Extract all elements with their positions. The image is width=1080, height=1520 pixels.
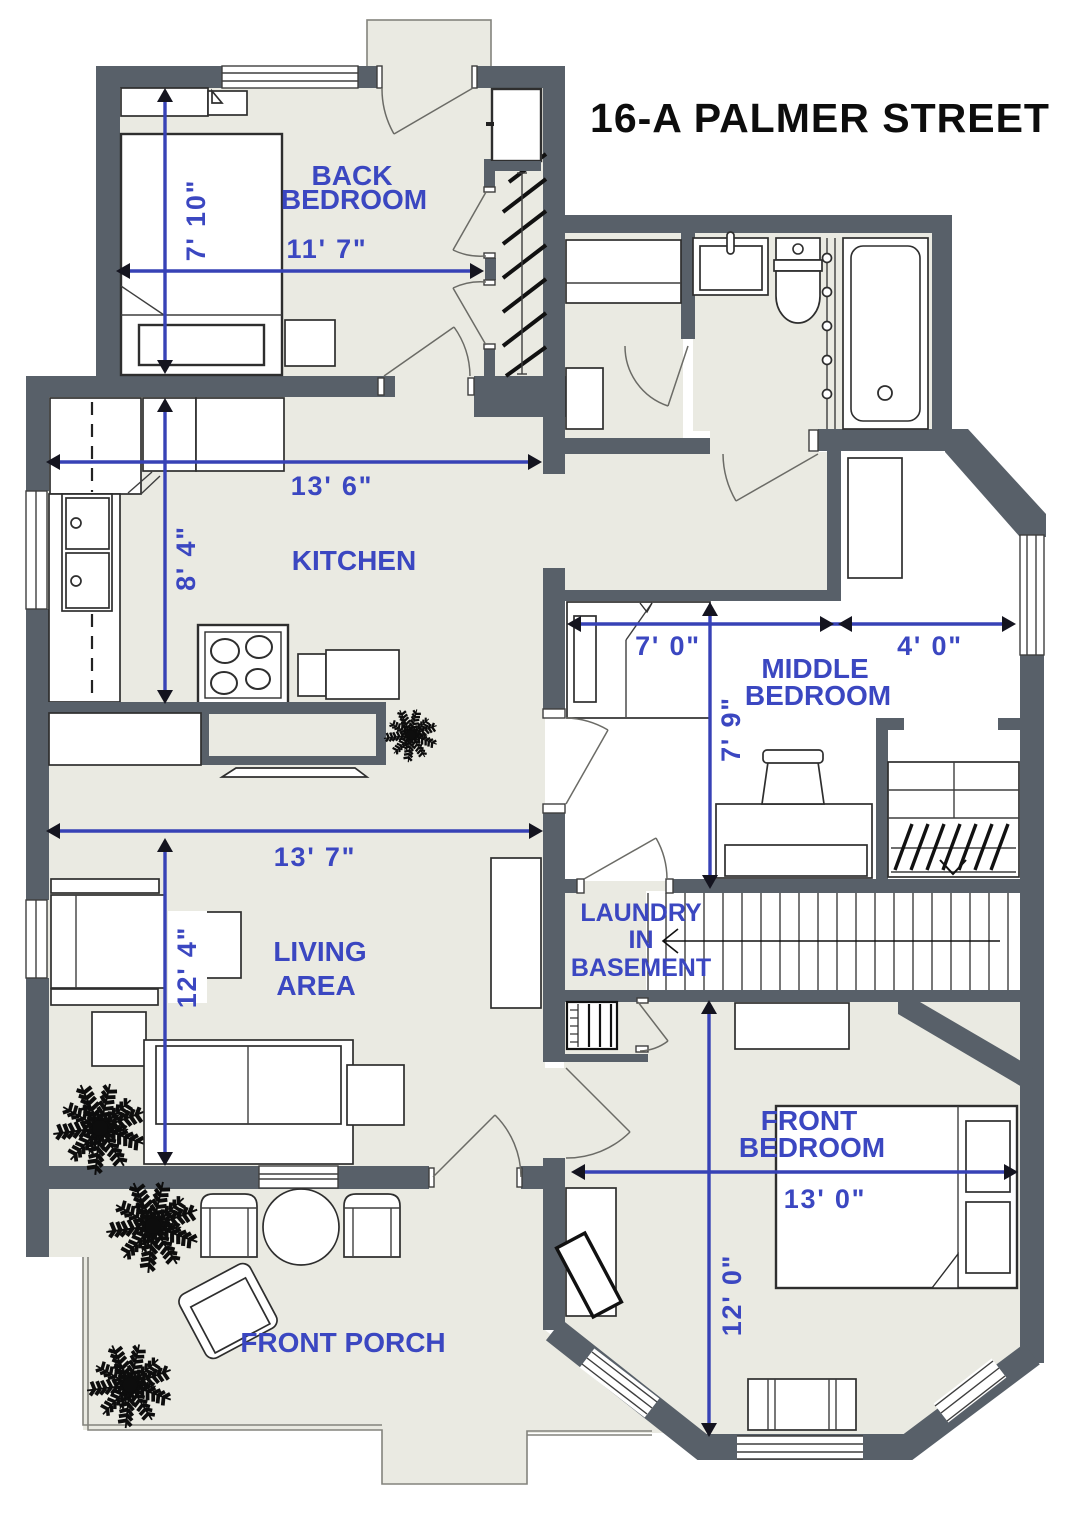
svg-text:LAUNDRY: LAUNDRY bbox=[580, 899, 702, 927]
svg-text:13' 7": 13' 7" bbox=[274, 842, 357, 872]
svg-text:IN: IN bbox=[629, 926, 654, 954]
svg-text:13' 6": 13' 6" bbox=[291, 471, 374, 501]
svg-text:BEDROOM: BEDROOM bbox=[281, 184, 427, 215]
svg-text:BEDROOM: BEDROOM bbox=[739, 1132, 885, 1163]
svg-text:13' 0": 13' 0" bbox=[784, 1184, 867, 1214]
svg-text:BASEMENT: BASEMENT bbox=[571, 954, 711, 982]
svg-text:KITCHEN: KITCHEN bbox=[292, 545, 416, 576]
svg-text:FRONT PORCH: FRONT PORCH bbox=[240, 1327, 445, 1358]
svg-text:BEDROOM: BEDROOM bbox=[745, 680, 891, 711]
svg-text:7' 9": 7' 9" bbox=[716, 696, 746, 762]
svg-text:12' 4": 12' 4" bbox=[172, 926, 202, 1009]
svg-text:8' 4": 8' 4" bbox=[171, 525, 201, 591]
svg-text:16-A PALMER STREET: 16-A PALMER STREET bbox=[590, 95, 1050, 141]
svg-text:11' 7": 11' 7" bbox=[286, 234, 367, 264]
svg-text:7' 10": 7' 10" bbox=[181, 179, 211, 262]
svg-text:12' 0": 12' 0" bbox=[717, 1254, 747, 1337]
svg-text:4' 0": 4' 0" bbox=[897, 631, 963, 661]
svg-text:7' 0": 7' 0" bbox=[635, 631, 701, 661]
svg-text:AREA: AREA bbox=[276, 970, 355, 1001]
svg-text:LIVING: LIVING bbox=[273, 936, 366, 967]
